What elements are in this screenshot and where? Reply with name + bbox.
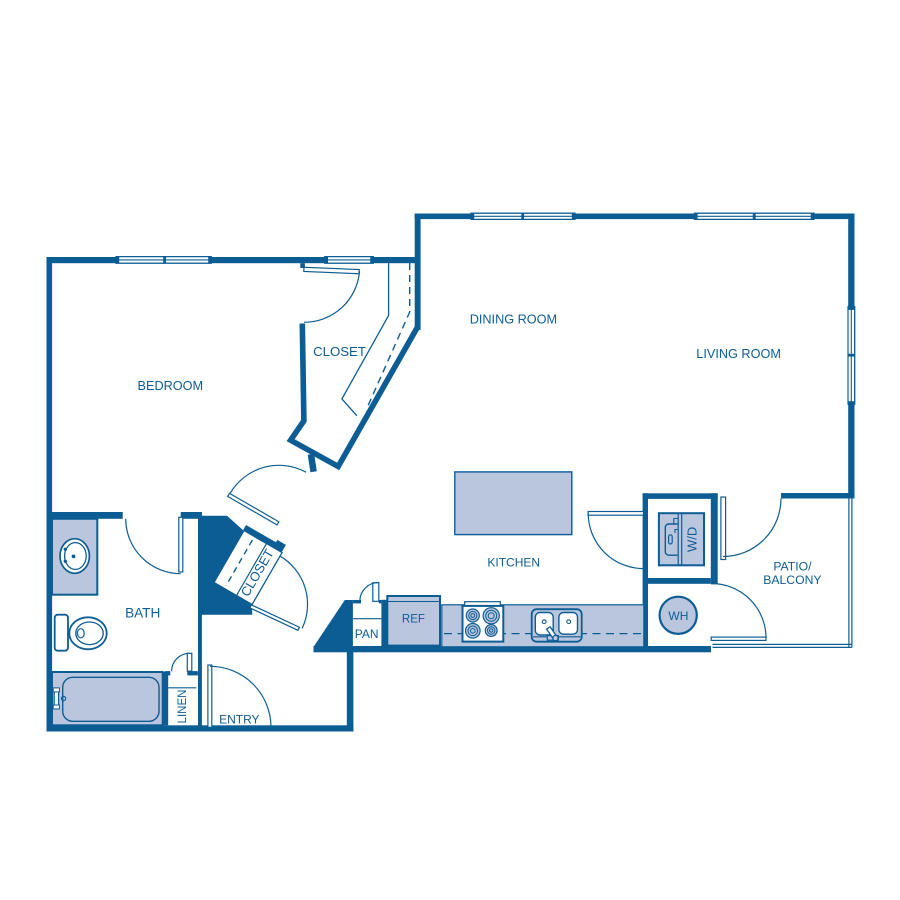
svg-text:BALCONY: BALCONY xyxy=(763,573,821,587)
svg-text:KITCHEN: KITCHEN xyxy=(487,556,540,570)
svg-text:ENTRY: ENTRY xyxy=(219,713,259,727)
svg-text:BATH: BATH xyxy=(125,605,160,620)
svg-text:PATIO/: PATIO/ xyxy=(773,560,812,574)
svg-text:CLOSET: CLOSET xyxy=(313,344,366,359)
svg-text:LINEN: LINEN xyxy=(177,690,189,724)
svg-text:DINING ROOM: DINING ROOM xyxy=(470,312,557,326)
svg-text:PAN: PAN xyxy=(355,627,379,641)
svg-text:LIVING ROOM: LIVING ROOM xyxy=(696,347,781,361)
svg-text:BEDROOM: BEDROOM xyxy=(138,379,204,393)
svg-text:W/D: W/D xyxy=(685,527,700,552)
svg-text:WH: WH xyxy=(668,609,688,623)
svg-text:REF: REF xyxy=(402,614,425,626)
